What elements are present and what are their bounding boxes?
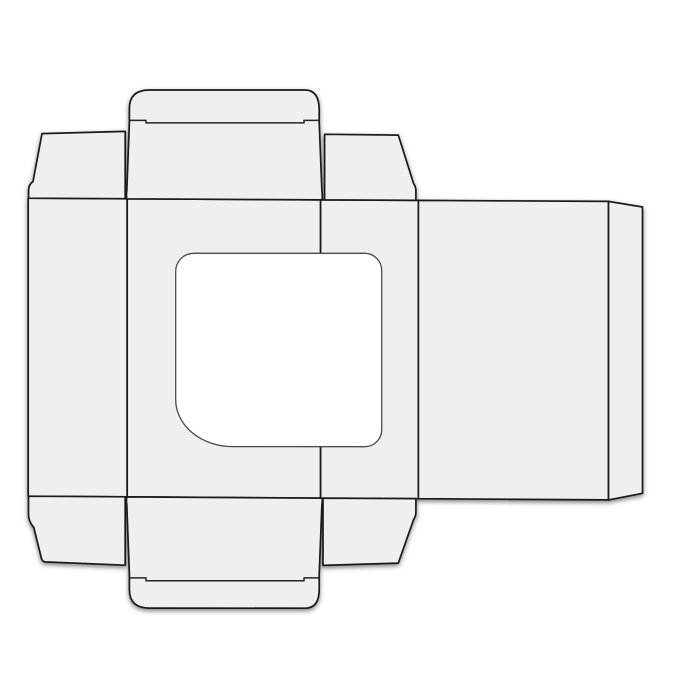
dust-flap-top-right bbox=[325, 134, 416, 200]
side-panel-left bbox=[28, 198, 127, 497]
dust-flap-top-left bbox=[29, 131, 126, 198]
tuck-panel-and-flap-bottom bbox=[126, 497, 322, 608]
window-cutout bbox=[176, 253, 382, 446]
dust-flap-bottom-left bbox=[29, 496, 126, 565]
dieline-canvas bbox=[0, 0, 700, 700]
glue-flap bbox=[609, 201, 643, 500]
back-panel bbox=[418, 200, 608, 500]
dieline-group bbox=[28, 90, 642, 608]
dust-flap-bottom-right bbox=[323, 498, 416, 565]
tuck-panel-and-flap-top bbox=[126, 90, 322, 200]
dieline-diagram bbox=[0, 0, 700, 700]
